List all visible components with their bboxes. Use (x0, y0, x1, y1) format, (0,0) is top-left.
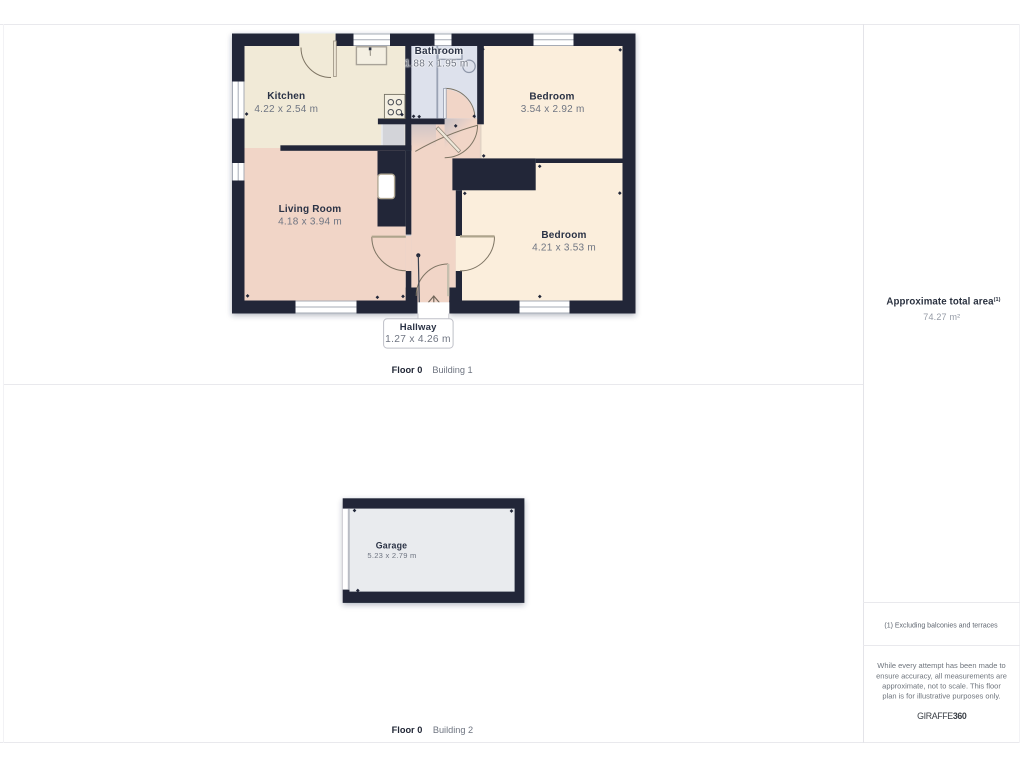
svg-text:Approximate total area(1): Approximate total area(1) (886, 297, 1000, 308)
svg-text:plan is for illustrative purpo: plan is for illustrative purposes only. (882, 691, 1000, 700)
svg-text:ensure accuracy, all measureme: ensure accuracy, all measurements are (876, 671, 1007, 680)
svg-text:Bedroom: Bedroom (529, 92, 574, 103)
svg-text:4.22 x 2.54 m: 4.22 x 2.54 m (254, 104, 318, 115)
svg-text:Kitchen: Kitchen (267, 91, 305, 102)
svg-text:3.54 x 2.92 m: 3.54 x 2.92 m (521, 104, 585, 115)
svg-text:(1) Excluding balconies and te: (1) Excluding balconies and terraces (884, 623, 998, 630)
svg-text:Bathroom: Bathroom (415, 46, 464, 57)
svg-text:While every attempt has been m: While every attempt has been made to (877, 661, 1005, 670)
svg-text:5.23 x 2.79 m: 5.23 x 2.79 m (367, 551, 416, 560)
svg-text:4.21 x 3.53 m: 4.21 x 3.53 m (532, 243, 596, 254)
svg-text:Garage: Garage (376, 540, 408, 550)
svg-text:Bedroom: Bedroom (541, 230, 586, 241)
svg-text:74.27 m²: 74.27 m² (923, 312, 960, 322)
svg-text:Floor 0: Floor 0 (392, 725, 423, 735)
svg-text:Hallway: Hallway (400, 322, 437, 333)
svg-text:1.88 x 1.95 m: 1.88 x 1.95 m (405, 59, 469, 70)
svg-text:approximate, not to scale. Thi: approximate, not to scale. This floor (882, 681, 1001, 690)
svg-text:Building 1: Building 1 (432, 365, 472, 375)
svg-text:Building 2: Building 2 (433, 725, 473, 735)
svg-text:Floor 0: Floor 0 (392, 365, 423, 375)
svg-text:Living Room: Living Room (279, 204, 342, 215)
svg-text:GIRAFFE360: GIRAFFE360 (917, 711, 967, 721)
svg-text:1.27 x 4.26 m: 1.27 x 4.26 m (385, 334, 451, 345)
svg-text:4.18 x 3.94 m: 4.18 x 3.94 m (278, 217, 342, 228)
